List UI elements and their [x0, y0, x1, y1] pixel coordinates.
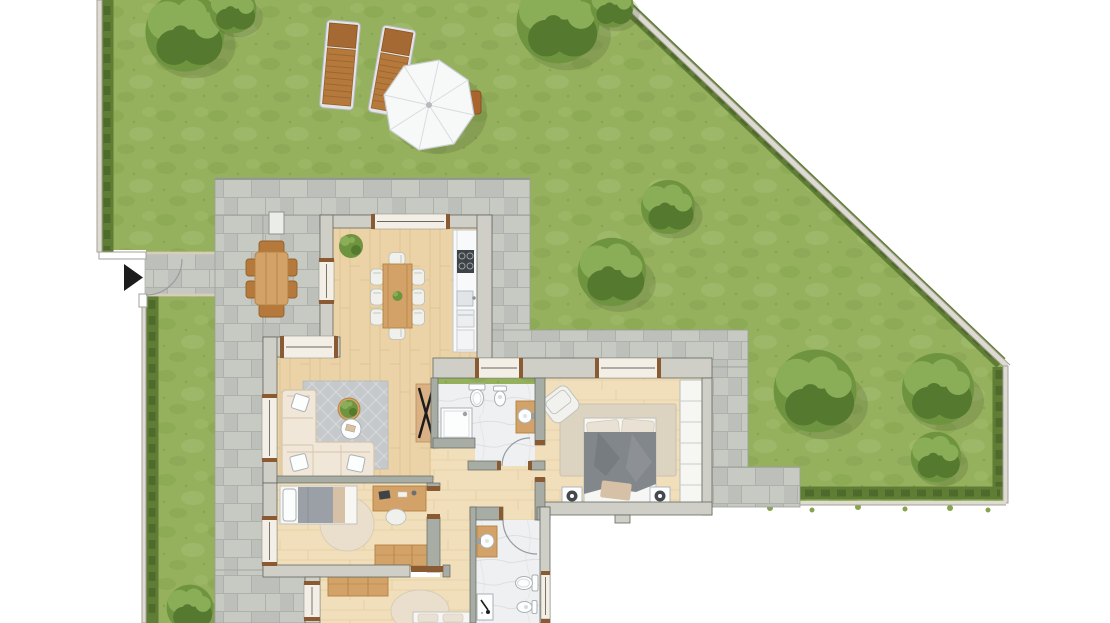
french-door-living-north	[280, 336, 338, 358]
oven	[457, 310, 474, 327]
storage-box	[269, 212, 284, 234]
throw-pillow	[347, 454, 366, 472]
wall-bathroom1-south-west	[433, 438, 475, 448]
wall-north-band	[433, 358, 712, 378]
corner-plant	[339, 234, 363, 258]
wall-south-bump	[615, 515, 630, 523]
shower	[477, 594, 493, 620]
east-fence	[1003, 366, 1008, 503]
outdoor-chair	[246, 259, 256, 276]
window-bathroom2-east	[541, 571, 550, 623]
walkway	[145, 252, 218, 296]
outdoor-chair	[287, 281, 297, 298]
throw-pillow	[600, 480, 632, 501]
vanity-basin	[516, 401, 535, 433]
window-living-west	[262, 394, 277, 462]
fridge	[457, 330, 474, 350]
outdoor-table	[255, 252, 288, 305]
kitchen-counter	[453, 230, 477, 352]
wall-bedroom3-north	[263, 565, 410, 577]
west-fence-lower	[142, 296, 146, 623]
vanity-basin	[477, 526, 497, 557]
window-kitchen-north	[371, 214, 450, 229]
bed-partial	[413, 612, 470, 623]
plant	[340, 400, 358, 418]
gate-leaf	[99, 252, 146, 259]
bed-pillow	[283, 489, 296, 521]
wall-bathroom1-west	[431, 378, 438, 448]
outdoor-chair	[259, 304, 284, 317]
shower	[441, 408, 472, 440]
window-bathroom1-north	[475, 358, 523, 378]
door-jamb-bathroom1	[497, 461, 501, 470]
west-fence	[97, 0, 102, 252]
desk-chair	[386, 509, 406, 525]
wall-bathroom1-south	[468, 461, 500, 470]
double-bed	[584, 418, 656, 505]
toilet	[469, 384, 485, 407]
outdoor-chair	[246, 281, 256, 298]
door-jamb-master	[535, 440, 545, 445]
gate-post	[139, 294, 147, 307]
outdoor-chair	[287, 259, 297, 276]
wall-living-bedroom2	[277, 476, 433, 483]
laptop	[378, 490, 390, 499]
window-bedroom2-west	[262, 516, 277, 566]
wall-master-south	[537, 502, 712, 515]
sun-lounger	[319, 20, 361, 111]
door-jamb-bedroom2	[427, 486, 440, 491]
faucet	[472, 296, 476, 300]
wardrobe	[680, 380, 702, 505]
bidet	[494, 386, 507, 406]
floor-plan-svg	[0, 0, 1110, 623]
wall-bathroom2-west	[470, 507, 476, 623]
window-master-north	[595, 358, 661, 378]
bidet	[517, 601, 537, 614]
window-kitchen-west	[319, 258, 334, 304]
floor-plan-canvas	[0, 0, 1110, 623]
wall-master-west	[535, 378, 545, 445]
sideboard	[375, 545, 431, 566]
window-bedroom3-west	[304, 581, 320, 621]
wall-kitchen-east	[477, 215, 492, 367]
wall-master-east	[702, 378, 712, 515]
kitchen-sink	[457, 291, 473, 306]
throw-pillow	[290, 453, 309, 471]
single-bed	[280, 486, 357, 524]
door-jamb-bathroom2	[499, 507, 503, 520]
toilet	[516, 575, 539, 591]
door-leaf-bedroom3	[411, 566, 443, 572]
